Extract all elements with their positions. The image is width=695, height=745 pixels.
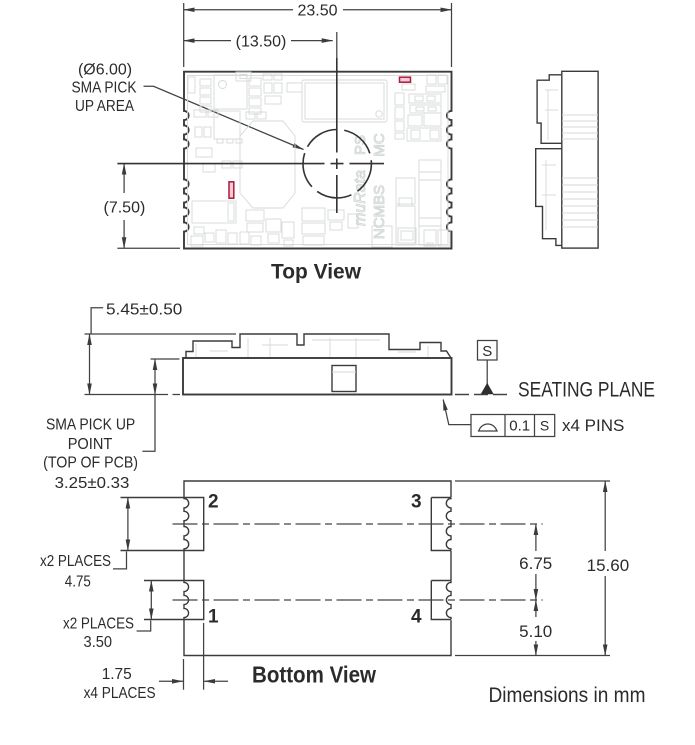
svg-text:1.75: 1.75: [102, 666, 132, 683]
svg-text:Bottom View: Bottom View: [252, 662, 376, 688]
svg-text:muRata: muRata: [352, 170, 369, 226]
svg-text:POINT: POINT: [68, 436, 113, 453]
svg-text:SEATING PLANE: SEATING PLANE: [518, 379, 655, 402]
svg-text:(13.50): (13.50): [236, 33, 287, 50]
svg-text:5.45±0.50: 5.45±0.50: [106, 302, 182, 319]
svg-text:2: 2: [208, 492, 219, 513]
svg-text:3: 3: [411, 492, 422, 513]
svg-text:x4 PINS: x4 PINS: [562, 416, 624, 435]
svg-text:x2 PLACES: x2 PLACES: [63, 616, 134, 633]
svg-text:SMA PICK UP: SMA PICK UP: [46, 417, 135, 434]
svg-text:6.75: 6.75: [519, 554, 552, 573]
svg-text:1: 1: [208, 607, 219, 628]
svg-text:5.10: 5.10: [519, 622, 552, 641]
svg-text:NCMBS: NCMBS: [371, 185, 388, 239]
svg-text:UP AREA: UP AREA: [75, 98, 134, 115]
svg-text:Top View: Top View: [271, 261, 362, 284]
svg-text:(Ø6.00): (Ø6.00): [78, 62, 132, 79]
svg-text:Dimensions in mm: Dimensions in mm: [489, 684, 646, 707]
svg-text:4.75: 4.75: [65, 574, 91, 591]
svg-text:SMA PICK: SMA PICK: [72, 80, 137, 97]
svg-text:x2 PLACES: x2 PLACES: [40, 553, 111, 570]
svg-text:15.60: 15.60: [587, 556, 630, 575]
svg-text:3.25±0.33: 3.25±0.33: [55, 475, 130, 492]
svg-text:(7.50): (7.50): [104, 200, 146, 217]
svg-text:x4 PLACES: x4 PLACES: [84, 685, 156, 702]
svg-text:(TOP OF PCB): (TOP OF PCB): [43, 455, 138, 472]
svg-text:3.50: 3.50: [84, 634, 113, 651]
svg-text:S: S: [482, 343, 492, 360]
svg-text:MC: MC: [371, 133, 388, 156]
svg-text:S: S: [540, 418, 549, 434]
svg-text:0.1: 0.1: [509, 418, 530, 435]
svg-text:23.50: 23.50: [297, 2, 337, 19]
svg-text:4: 4: [411, 607, 422, 628]
